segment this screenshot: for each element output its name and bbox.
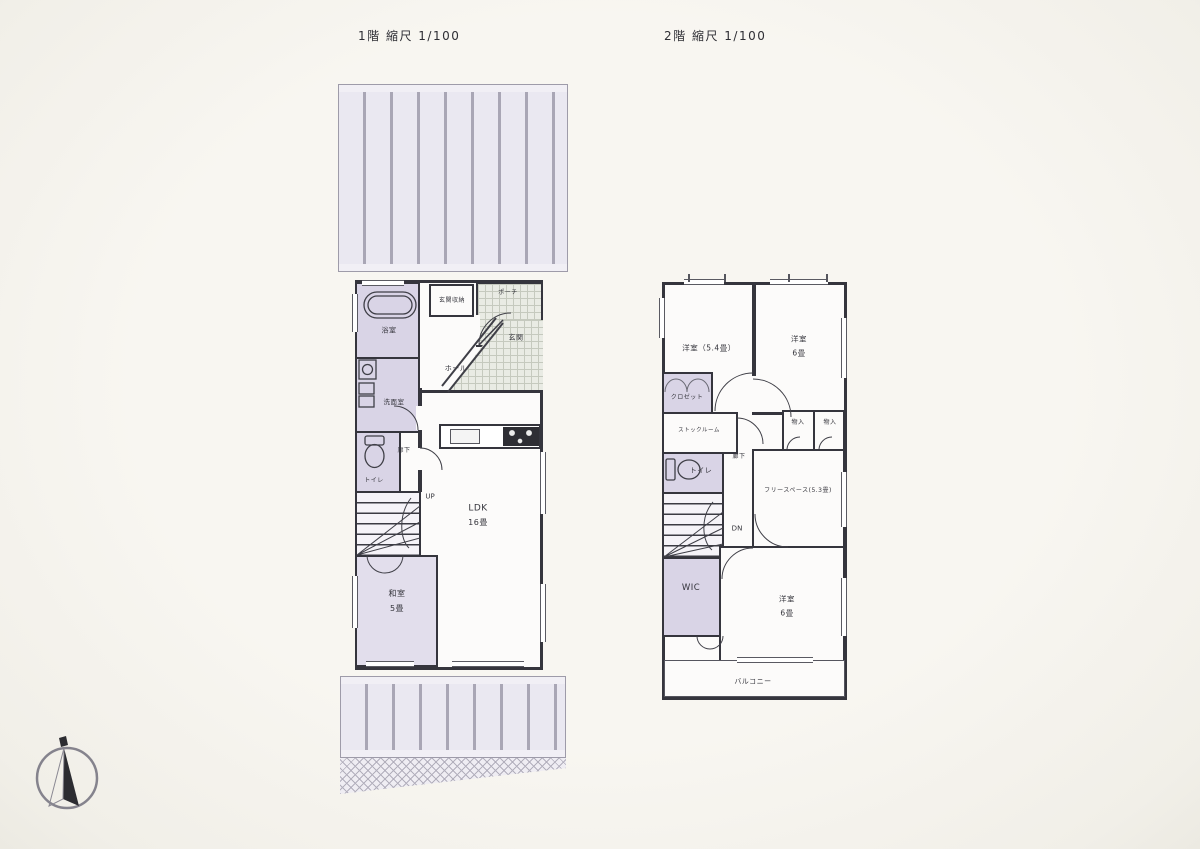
floor1-room-washroom: [355, 357, 420, 433]
floor2-label-bedroom-c: 洋室: [779, 595, 795, 603]
window: [452, 661, 524, 667]
floor2-wic: [662, 557, 721, 637]
wall: [421, 390, 543, 393]
floor2-stairs: [662, 492, 724, 559]
window: [841, 578, 847, 636]
window: [352, 294, 358, 332]
kitchen-sink: [450, 429, 480, 444]
window: [352, 576, 358, 628]
floor2-title: 2階 縮尺 1/100: [664, 27, 766, 44]
floor1-label-porch: ポーチ: [498, 290, 518, 296]
window-tick: [688, 274, 690, 282]
floor1-label-toilet: トイレ: [364, 478, 384, 484]
floor1-room-bathroom: [355, 282, 420, 359]
window: [366, 661, 414, 667]
window: [770, 279, 828, 285]
floor2-label-storage-b: 物入: [823, 420, 836, 426]
window: [684, 279, 724, 285]
floor1-label-entrance-storage: 玄関収納: [439, 298, 465, 304]
floor2-label-bedroom-c-size: 6畳: [780, 609, 793, 617]
floor1-label-entrance: 玄関: [509, 335, 524, 342]
floor2-label-storage-a: 物入: [791, 420, 804, 426]
window-tick: [788, 274, 790, 282]
window: [737, 657, 813, 663]
floor2-label-closet: クロゼット: [671, 395, 704, 401]
wall: [418, 470, 422, 492]
floor2-label-balcony: バルコニー: [734, 679, 771, 686]
deck-planks: [339, 92, 567, 264]
window: [841, 472, 847, 527]
floor1-label-bathroom: 浴室: [382, 328, 397, 335]
deck-planks: [341, 684, 565, 750]
wall: [813, 410, 815, 451]
floor2-label-corridor: 廊下: [732, 454, 745, 460]
window: [540, 452, 546, 514]
window-tick: [724, 274, 726, 282]
door-opening: [416, 448, 422, 470]
floor1-title: 1階 縮尺 1/100: [358, 27, 460, 44]
wall: [752, 412, 785, 415]
floor1-label-ldk-size: 16畳: [468, 519, 488, 527]
floor1-label-hall: ホール: [445, 366, 468, 373]
floor2-closet: [662, 372, 713, 414]
floor2-label-stock-room: ストックルーム: [678, 428, 720, 434]
floor2-label-toilet: トイレ: [690, 468, 713, 475]
floor2-label-free-space: フリースペース(5.3畳): [764, 488, 832, 494]
floor1-label-corridor: 廊下: [397, 448, 410, 454]
door-opening: [416, 406, 422, 430]
door-opening: [474, 315, 480, 345]
floor2-label-wic: WIC: [682, 584, 700, 593]
floor1-deck-bottom: [340, 676, 566, 758]
floor1-label-ldk: LDK: [468, 505, 487, 514]
floor1-road-hatch: [340, 758, 566, 794]
floor1-stairs: [355, 491, 421, 557]
floor1-label-washroom: 洗面室: [384, 399, 405, 406]
floor1-label-stairs-up: UP: [425, 494, 434, 501]
window-tick: [826, 274, 828, 282]
window: [659, 298, 665, 338]
floorplan-page: 1階 縮尺 1/100 2階 縮尺 1/100 浴室 玄関収納 ポーチ 玄関 ホ…: [0, 0, 1200, 849]
floor2-label-stairs-dn: DN: [732, 526, 743, 533]
floor1-deck-top: [338, 84, 568, 272]
floor2-bedroom-c: [719, 546, 845, 662]
floor1-label-japanese-room-size: 5畳: [390, 605, 404, 613]
kitchen-stove: [503, 427, 539, 446]
window: [362, 280, 404, 286]
floor1-label-japanese-room: 和室: [389, 590, 406, 598]
floor2-label-bedroom-b-size: 6畳: [792, 349, 805, 357]
window: [540, 584, 546, 642]
north-arrow-icon: [37, 736, 97, 808]
wall: [752, 282, 756, 376]
floor2-label-bedroom-b: 洋室: [791, 335, 807, 343]
floor2-free-space: [752, 449, 845, 548]
window: [841, 318, 847, 378]
fixtures-overlay: [0, 0, 1200, 849]
floor2-label-bedroom-a: 洋室（5.4畳）: [682, 344, 735, 352]
